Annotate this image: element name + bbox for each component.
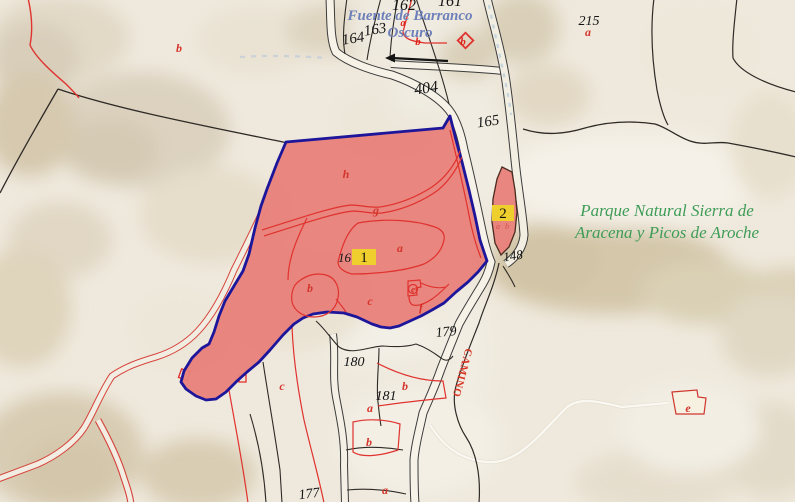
svg-text:Fuente de Barranco: Fuente de Barranco [346, 8, 472, 24]
svg-text:177: 177 [298, 486, 322, 502]
svg-text:2: 2 [499, 206, 507, 222]
svg-text:16: 16 [338, 250, 352, 265]
svg-text:b: b [307, 281, 313, 295]
svg-text:b: b [505, 222, 509, 231]
svg-text:a: a [496, 222, 500, 231]
svg-text:a: a [401, 18, 406, 29]
svg-text:165: 165 [476, 112, 501, 131]
svg-text:180: 180 [344, 355, 365, 370]
svg-text:c: c [279, 379, 285, 393]
svg-text:a: a [367, 401, 373, 415]
svg-text:b: b [366, 435, 372, 449]
svg-text:e: e [411, 285, 415, 295]
svg-text:Parque Natural Sierra de: Parque Natural Sierra de [579, 201, 754, 220]
svg-text:a: a [585, 25, 591, 39]
svg-text:e: e [685, 401, 691, 415]
svg-text:1: 1 [360, 250, 368, 266]
svg-text:181: 181 [376, 389, 397, 404]
svg-text:179: 179 [435, 324, 457, 341]
svg-text:b: b [415, 36, 421, 48]
svg-text:Aracena y Picos de Aroche: Aracena y Picos de Aroche [574, 223, 760, 242]
svg-text:Oscuro: Oscuro [387, 25, 432, 41]
svg-text:b: b [402, 379, 408, 393]
svg-text:a: a [382, 483, 388, 497]
svg-text:g: g [372, 203, 379, 217]
svg-text:h: h [343, 167, 350, 181]
svg-text:b: b [460, 36, 466, 48]
svg-text:c: c [367, 294, 373, 308]
svg-text:a: a [397, 241, 403, 255]
svg-text:404: 404 [413, 78, 439, 98]
svg-text:b: b [176, 41, 182, 55]
svg-text:148: 148 [502, 246, 524, 264]
